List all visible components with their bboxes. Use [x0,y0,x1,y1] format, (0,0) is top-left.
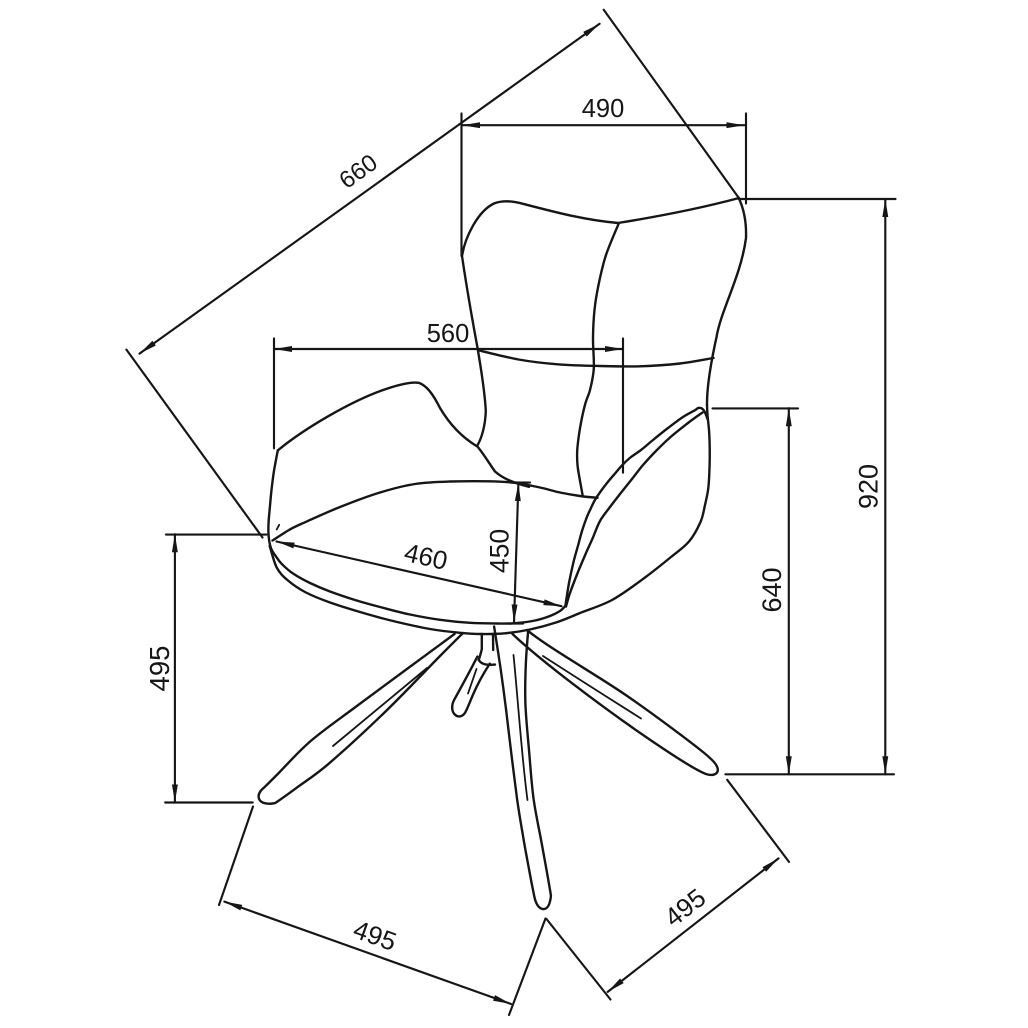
svg-text:640: 640 [757,567,787,612]
svg-text:920: 920 [854,464,884,509]
svg-text:490: 490 [582,95,625,123]
svg-text:495: 495 [144,646,175,692]
svg-text:560: 560 [427,320,470,348]
svg-text:450: 450 [485,529,515,573]
